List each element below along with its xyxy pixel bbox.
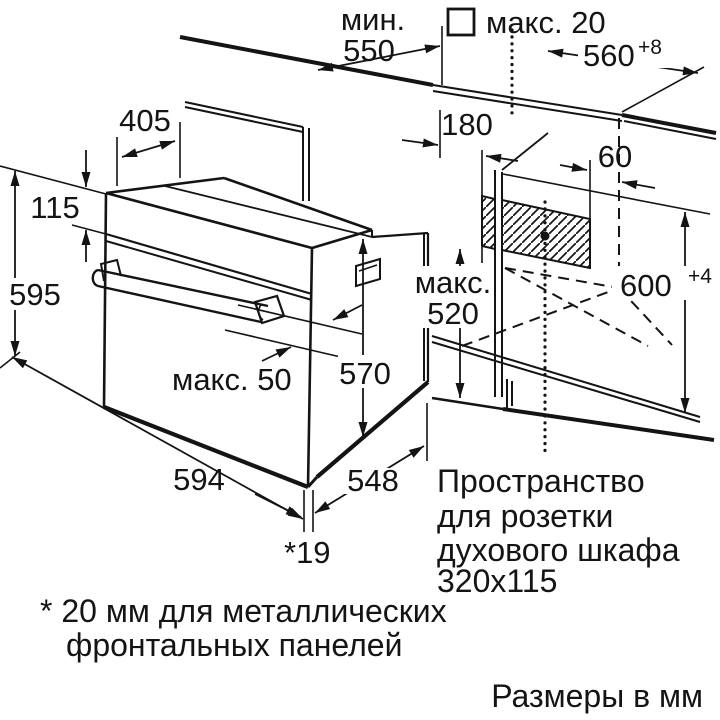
max-inner-value-label: 520 bbox=[427, 296, 479, 331]
metal-front-square-icon bbox=[448, 9, 474, 35]
socket-center-dot bbox=[541, 232, 550, 241]
socket-note: Пространство для розетки духового шкафа … bbox=[437, 463, 680, 599]
units-note: Размеры в мм bbox=[491, 678, 703, 714]
body-width-label: 548 bbox=[347, 463, 399, 498]
top-depth-label: 405 bbox=[119, 103, 171, 138]
min-depth-value-label: 550 bbox=[343, 33, 395, 68]
niche-height-label: 600 bbox=[620, 268, 672, 303]
oven-height-label: 595 bbox=[9, 277, 61, 312]
footnote-line1: * 20 мм для металлических bbox=[40, 593, 447, 629]
max-inner-prefix-label: макс. bbox=[415, 265, 492, 300]
oven-installation-diagram: мин. 550 макс. 20 560 +8 405 115 595 180… bbox=[0, 0, 720, 720]
min-depth-prefix-label: мин. bbox=[341, 2, 405, 37]
footnote-line2: фронтальных панелей bbox=[66, 627, 402, 663]
footnote: * 20 мм для металлических фронтальных па… bbox=[40, 593, 447, 663]
niche-width-label: 560 bbox=[583, 38, 635, 73]
niche-height-tolerance-label: +4 bbox=[688, 265, 712, 288]
side-vent-detail bbox=[356, 259, 380, 286]
panel-height-label: 115 bbox=[30, 190, 79, 225]
socket-offset-right-label: 60 bbox=[598, 139, 632, 174]
socket-note-line2: для розетки bbox=[437, 498, 613, 534]
handle-max-label: макс. 50 bbox=[172, 362, 292, 397]
socket-note-line1: Пространство bbox=[437, 463, 645, 499]
oven-handle bbox=[93, 260, 284, 323]
socket-area-hatch bbox=[482, 196, 590, 268]
socket-note-size: 320x115 bbox=[437, 563, 557, 599]
max-protrusion-label: макс. 20 bbox=[486, 5, 606, 40]
niche-width-tolerance-label: +8 bbox=[638, 36, 662, 59]
oven-drawing bbox=[93, 178, 428, 487]
body-depth-label: 570 bbox=[339, 356, 391, 391]
oven-width-label: 594 bbox=[173, 462, 225, 497]
socket-offset-left-label: 180 bbox=[441, 107, 493, 142]
installation-diagram-canvas: мин. 550 макс. 20 560 +8 405 115 595 180… bbox=[0, 0, 720, 720]
front-gap-label: *19 bbox=[284, 535, 331, 570]
